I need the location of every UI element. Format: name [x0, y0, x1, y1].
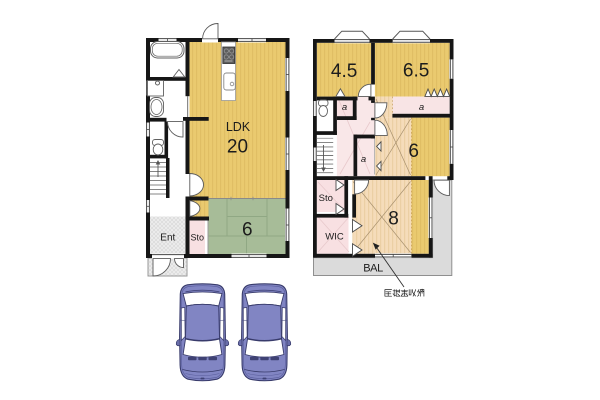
svg-text:8: 8 [388, 209, 399, 230]
svg-text:6.5: 6.5 [403, 61, 429, 82]
svg-text:Sto: Sto [319, 193, 333, 204]
svg-text:BAL: BAL [363, 262, 383, 274]
svg-text:Sto: Sto [191, 232, 205, 242]
svg-text:Ent: Ent [160, 233, 175, 244]
svg-text:6: 6 [408, 141, 419, 162]
svg-text:a: a [361, 154, 366, 165]
svg-text:20: 20 [227, 137, 248, 158]
svg-text:a: a [342, 102, 347, 113]
svg-text:WIC: WIC [325, 231, 344, 242]
svg-text:a: a [419, 102, 424, 113]
svg-text:6: 6 [242, 220, 253, 241]
svg-text:4.5: 4.5 [331, 61, 357, 82]
svg-text:LDK: LDK [226, 120, 251, 134]
